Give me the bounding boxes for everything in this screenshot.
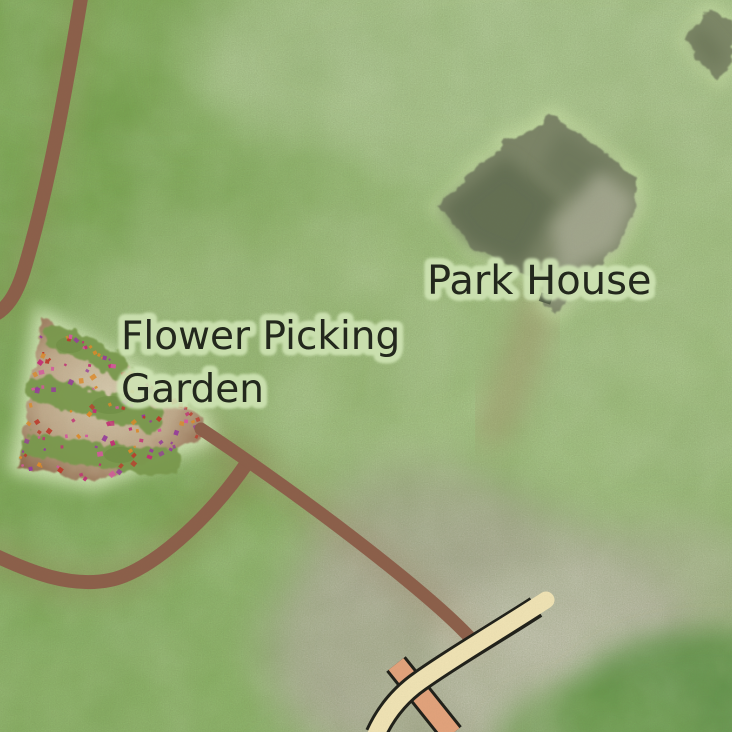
label-garden-line2: Garden (121, 367, 264, 412)
park-map: Park House Park House Flower Picking Flo… (0, 0, 732, 732)
label-garden-line1: Flower Picking (121, 314, 400, 359)
paper-grain-overlay (0, 0, 732, 732)
map-canvas[interactable]: Park House Park House Flower Picking Flo… (0, 0, 732, 732)
label-park-house: Park House (427, 258, 652, 304)
